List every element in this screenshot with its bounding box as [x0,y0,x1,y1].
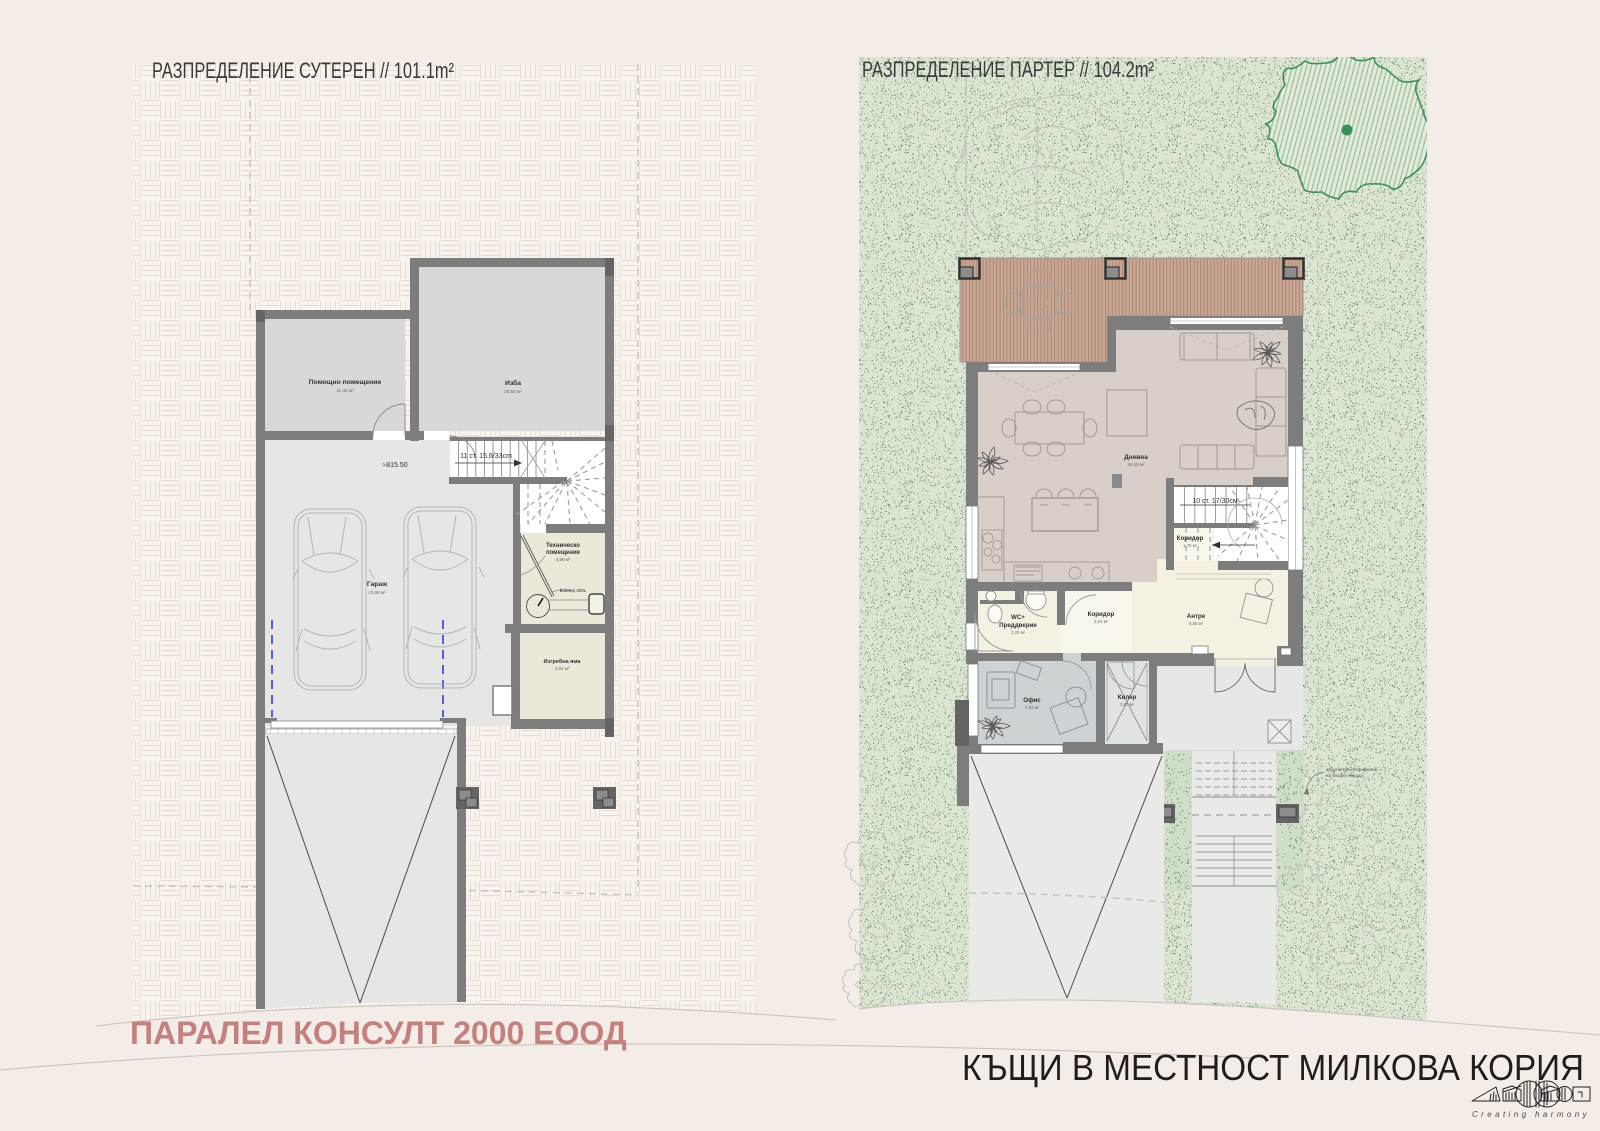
svg-text:Изба: Изба [505,379,521,387]
svg-text:КЪЩИ В МЕСТНОСТ МИЛКОВА КОРИЯ: КЪЩИ В МЕСТНОСТ МИЛКОВА КОРИЯ [962,1047,1584,1088]
svg-text:Преддверие: Преддверие [999,622,1037,629]
svg-text:3,20 м²: 3,20 м² [1011,630,1026,635]
svg-text:архитектурно оформяне: архитектурно оформяне [1326,767,1378,772]
svg-text:11 ст. 15,6/33cm: 11 ст. 15,6/33cm [460,453,512,460]
svg-text:11,40 м²: 11,40 м² [336,388,354,393]
svg-text:Килер: Килер [1118,694,1137,701]
svg-text:40,15 м²: 40,15 м² [1127,462,1145,467]
svg-text:Дневна: Дневна [1124,454,1148,461]
svg-text:2,01 м²: 2,01 м² [1094,619,1109,624]
svg-text:Коридор: Коридор [1088,611,1115,618]
svg-text:помещение: помещение [546,550,581,556]
svg-text:≈815.50: ≈815.50 [382,462,407,469]
svg-text:ПАРАЛЕЛ КОНСУЛТ 2000 ЕООД: ПАРАЛЕЛ КОНСУЛТ 2000 ЕООД [130,1015,627,1051]
svg-text:Бойлер 300L: Бойлер 300L [560,587,587,593]
svg-text:Помощно помещение: Помощно помещение [309,379,382,386]
svg-text:4,84 м²: 4,84 м² [555,666,570,671]
svg-text:4,99 м²: 4,99 м² [556,557,571,562]
svg-text:WC+: WC+ [1011,614,1025,621]
svg-text:28,50 м²: 28,50 м² [504,389,522,394]
svg-text:Антре: Антре [1187,613,1206,620]
svg-text:РАЗПРЕДЕЛЕНИЕ СУТЕРЕН // 101.1: РАЗПРЕДЕЛЕНИЕ СУТЕРЕН // 101.1m² [152,58,454,83]
svg-text:10 ст. 17/30см: 10 ст. 17/30см [1192,498,1238,505]
svg-text:1,70 м²: 1,70 м² [1183,543,1198,548]
svg-text:7,93 м²: 7,93 м² [1025,705,1040,710]
svg-text:6,80 м²: 6,80 м² [1189,621,1204,626]
svg-text:Коридор: Коридор [1177,535,1204,542]
svg-text:Офис: Офис [1023,697,1041,704]
svg-text:3,87 м²: 3,87 м² [1120,702,1135,707]
svg-text:43,88 м²: 43,88 м² [368,590,386,595]
svg-text:РАЗПРЕДЕЛЕНИЕ ПАРТЕР // 104.2m: РАЗПРЕДЕЛЕНИЕ ПАРТЕР // 104.2m² [862,57,1154,82]
svg-text:Изгребна яма: Изгребна яма [544,658,582,665]
svg-text:Creating harmony: Creating harmony [1472,1110,1590,1119]
svg-text:на входен подход: на входен подход [1326,773,1363,778]
svg-text:Гараж: Гараж [367,581,387,588]
svg-text:Техническо: Техническо [546,543,580,549]
